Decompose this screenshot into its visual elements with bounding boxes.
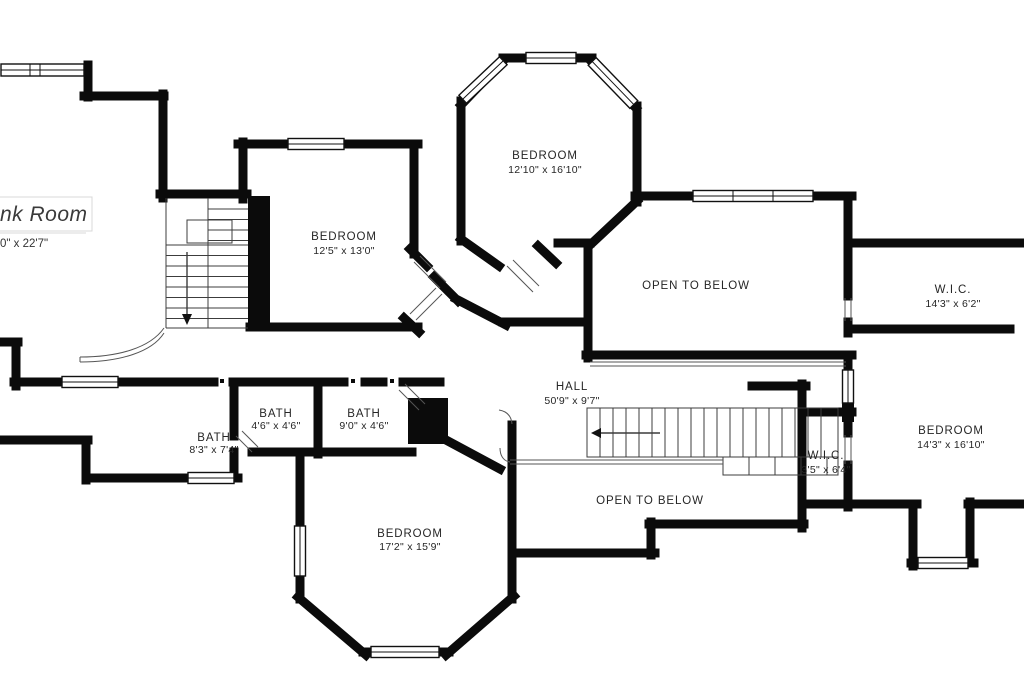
door-jamb-mark [351,379,355,383]
room-name: BATH [259,408,292,420]
room-dims: 4'6" x 4'6" [251,420,300,432]
stair-down-arrow-icon [182,252,192,325]
room-dims: 12'10" x 16'10" [508,164,582,176]
room-dims: 14'3" x 16'10" [917,439,985,451]
window-icon [188,473,234,484]
window-icon [843,370,854,403]
window-icon [288,139,344,150]
window-icon [459,57,507,104]
floor-plan: nk Room 0" x 22'7" BEDROOM 12'5" x 13'0"… [0,0,1024,683]
room-dims: 0" x 22'7" [0,238,48,250]
room-name: OPEN TO BELOW [642,280,750,292]
walls [0,58,1024,655]
room-name: BATH [347,408,380,420]
window-icon [588,58,638,109]
room-dims: 50'9" x 9'7" [544,395,599,407]
room-name: W.I.C. [935,284,972,296]
room-name: HALL [556,381,588,393]
bunk-room-tag: nk Room 0" x 22'7" [0,197,92,250]
door-leaf [410,288,442,320]
door-jamb-mark [960,329,964,333]
window-icon [62,377,118,388]
window-icon [1,64,84,76]
room-name: OPEN TO BELOW [596,495,704,507]
window-icon [371,647,439,658]
room-dims: 12'5" x 13'0" [313,245,375,257]
room-dims: 8'3" x 7'4" [189,444,238,456]
room-name: BEDROOM [377,528,443,540]
door-leaf [507,260,539,292]
curved-railing [80,328,164,362]
room-name: BEDROOM [918,425,984,437]
room-dims: 3'5" x 6'4" [801,464,850,476]
door-jamb-mark [943,325,947,329]
window-icon [295,526,306,576]
door-leaf [845,435,851,464]
room-dims: 9'0" x 4'6" [339,420,388,432]
room-name: W.I.C. [808,450,845,462]
door-jamb-mark [390,379,394,383]
floor-plan-page: nk Room 0" x 22'7" BEDROOM 12'5" x 13'0"… [0,0,1024,683]
room-name: nk Room [0,203,88,226]
room-dims: 17'2" x 15'9" [379,541,441,553]
open-to-below-railings [500,362,846,464]
room-dims: 14'3" x 6'2" [925,298,980,310]
upper-staircase [80,198,248,362]
door-jamb-mark [836,193,840,197]
window-icon [693,191,813,202]
window-icon [526,53,576,64]
window-icon [918,558,968,569]
room-name: BEDROOM [512,150,578,162]
room-name: BEDROOM [311,231,377,243]
door-jamb-mark [220,379,224,383]
solid-wall-block [248,196,270,326]
room-name: BATH [197,432,230,444]
